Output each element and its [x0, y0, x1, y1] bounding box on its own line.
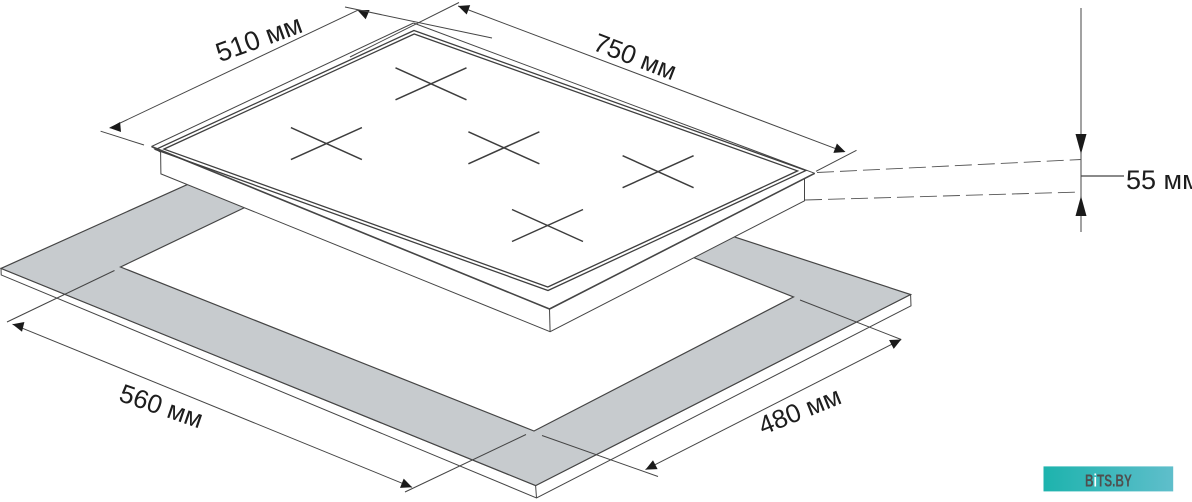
svg-text:55 мм: 55 мм	[1126, 165, 1192, 195]
svg-text:BiTS.BY: BiTS.BY	[1085, 471, 1132, 491]
